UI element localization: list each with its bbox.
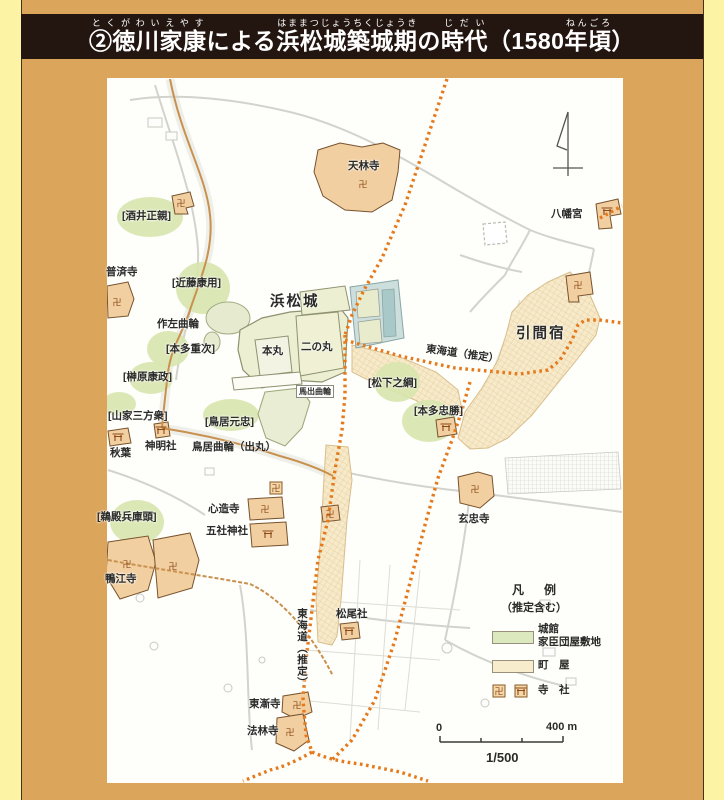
label-tozenji: 東漸寺: [249, 699, 281, 710]
label-hikuma-juku: 引間宿: [516, 327, 566, 342]
label-kamoeji: 鴨江寺: [105, 574, 137, 585]
legend-label-temples: 寺 社: [538, 684, 570, 697]
legend-subheading: （推定含む）: [501, 599, 567, 615]
label-honmaru: 本丸: [262, 346, 283, 357]
label-hachimangu: 八幡宮: [551, 209, 583, 220]
page: { "title": { "segments": [ {"t": "②徳川家康"…: [0, 0, 724, 800]
scale-ratio: 1/500: [486, 750, 519, 765]
label-akiba: 秋葉: [110, 448, 131, 459]
label-shinzoji: 心造寺: [208, 504, 240, 515]
map-labels: 凡 例 （推定含む） 城館家臣団屋敷地 町 屋 寺 社 0 400 m 1/50…: [0, 0, 724, 800]
scale-zero: 0: [436, 722, 442, 734]
label-sakuza-kuruwa: 作左曲輪: [157, 319, 199, 330]
label-gosha-jinja: 五社神社: [206, 526, 248, 537]
label-fusaiji: 普済寺: [106, 267, 138, 278]
label-honda-shigetsugu: [本多重次]: [166, 344, 215, 355]
label-sakakibara-yasumasa: [榊原康政]: [123, 372, 172, 383]
legend-label-machiya: 町 屋: [538, 659, 570, 672]
label-yamaga-sanposhu: [山家三方衆]: [108, 411, 168, 422]
label-torii-kuruwa-demaru: 鳥居曲輪（出丸）: [192, 442, 276, 453]
label-torii-mototada: [鳥居元忠]: [205, 417, 254, 428]
label-honda-tadakatsu: [本多忠勝]: [414, 406, 463, 417]
legend-label-castle: 城館家臣団屋敷地: [538, 623, 601, 649]
label-tenrinji: 天林寺: [348, 161, 380, 172]
label-umadashi-kuruwa: 馬出曲輪: [296, 385, 334, 398]
label-ninomaru: 二の丸: [301, 342, 333, 353]
label-matsushita-yukitsuna: [松下之綱]: [368, 378, 417, 389]
label-shinmeisha: 神明社: [145, 441, 177, 452]
scale-max: 400 m: [546, 721, 577, 733]
label-kondo-yasumochi: [近藤康用]: [172, 278, 221, 289]
label-horinji: 法林寺: [247, 726, 279, 737]
label-tokaido-south: 東海道（推定）: [296, 608, 307, 689]
label-sakai-masachika: [酒井正親]: [122, 211, 171, 222]
legend-swatch-machiya: [492, 660, 534, 673]
label-matsuosha: 松尾社: [336, 609, 368, 620]
legend-swatch-castle: [492, 631, 534, 644]
label-tokaido-east: 東海道（推定）: [425, 344, 499, 365]
legend-heading: 凡 例: [512, 581, 560, 598]
label-udono-hyogonokami: [鵜殿兵庫頭]: [97, 512, 157, 523]
label-hamamatsu-castle: 浜松城: [270, 295, 320, 310]
label-genchuji: 玄忠寺: [458, 514, 490, 525]
